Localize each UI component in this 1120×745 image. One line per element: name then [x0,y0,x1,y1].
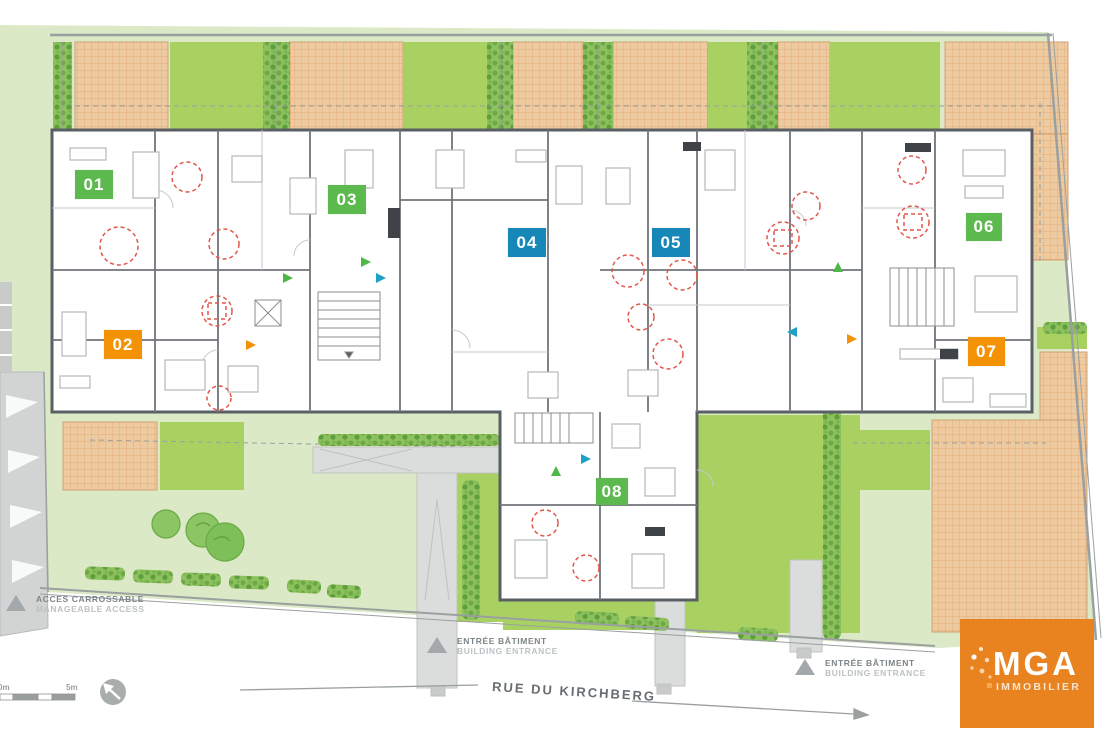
unit-label-05: 05 [652,228,690,257]
unit-label-03: 03 [328,185,366,214]
scale-end-label: 5m [66,683,78,692]
unit-label-01: 01 [75,170,113,199]
site-plan: 01 02 03 04 05 06 07 08 ACCES CARROSSABL… [0,0,1120,745]
scale-bar [0,694,75,700]
mga-logo: MGA IMMOBILIER [960,619,1094,728]
legend-building-entrance-1: ENTRÉE BÂTIMENT BUILDING ENTRANCE [427,636,558,656]
legend-label-en: MANAGEABLE ACCESS [36,604,145,614]
triangle-marker-icon [427,637,447,653]
legend-manageable-access: ACCES CARROSSABLE MANAGEABLE ACCESS [6,594,145,614]
legend-label-fr: ENTRÉE BÂTIMENT [825,658,926,668]
legend-building-entrance-2: ENTRÉE BÂTIMENT BUILDING ENTRANCE [795,658,926,678]
unit-label-04: 04 [508,228,546,257]
logo-subtitle: IMMOBILIER [996,681,1081,693]
unit-label-08: 08 [596,478,628,505]
unit-label-02: 02 [104,330,142,359]
legend-label-en: BUILDING ENTRANCE [457,646,558,656]
unit-label-07: 07 [968,337,1005,366]
unit-label-06: 06 [966,213,1002,241]
legend-label-fr: ENTRÉE BÂTIMENT [457,636,558,646]
scale-start-label: 0m [0,683,10,692]
north-arrow-compass-icon [100,679,126,705]
logo-wordmark: MGA [993,645,1079,683]
plan-drawing [0,0,1120,745]
triangle-marker-icon [795,659,815,675]
triangle-marker-icon [6,595,26,611]
legend-label-en: BUILDING ENTRANCE [825,668,926,678]
legend-label-fr: ACCES CARROSSABLE [36,594,145,604]
